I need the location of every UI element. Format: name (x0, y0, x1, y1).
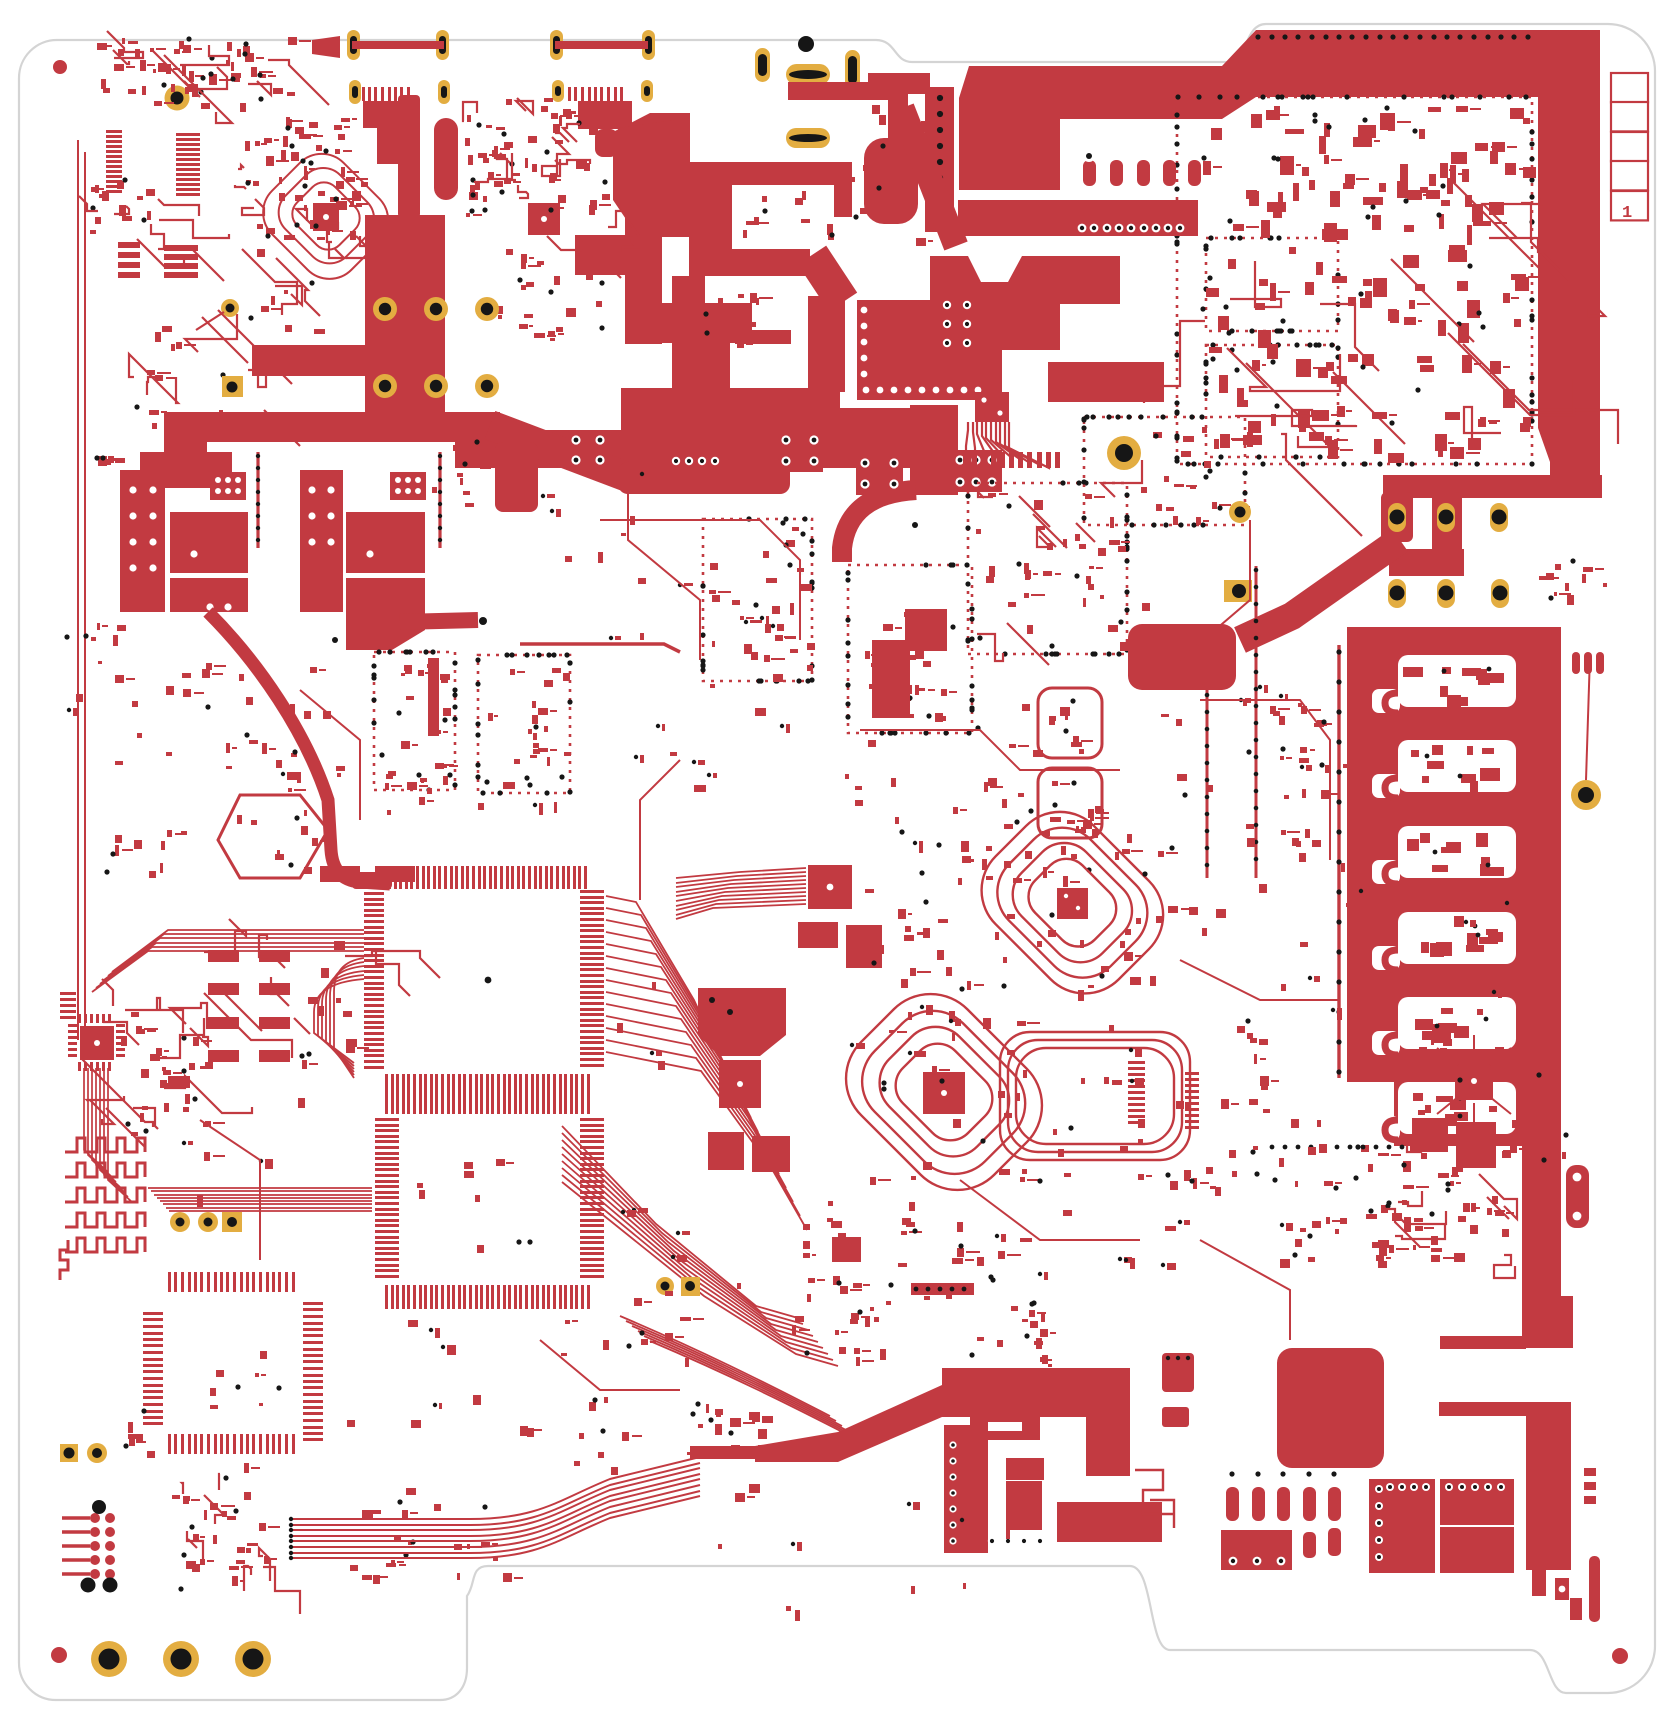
svg-text:1: 1 (1622, 204, 1632, 223)
